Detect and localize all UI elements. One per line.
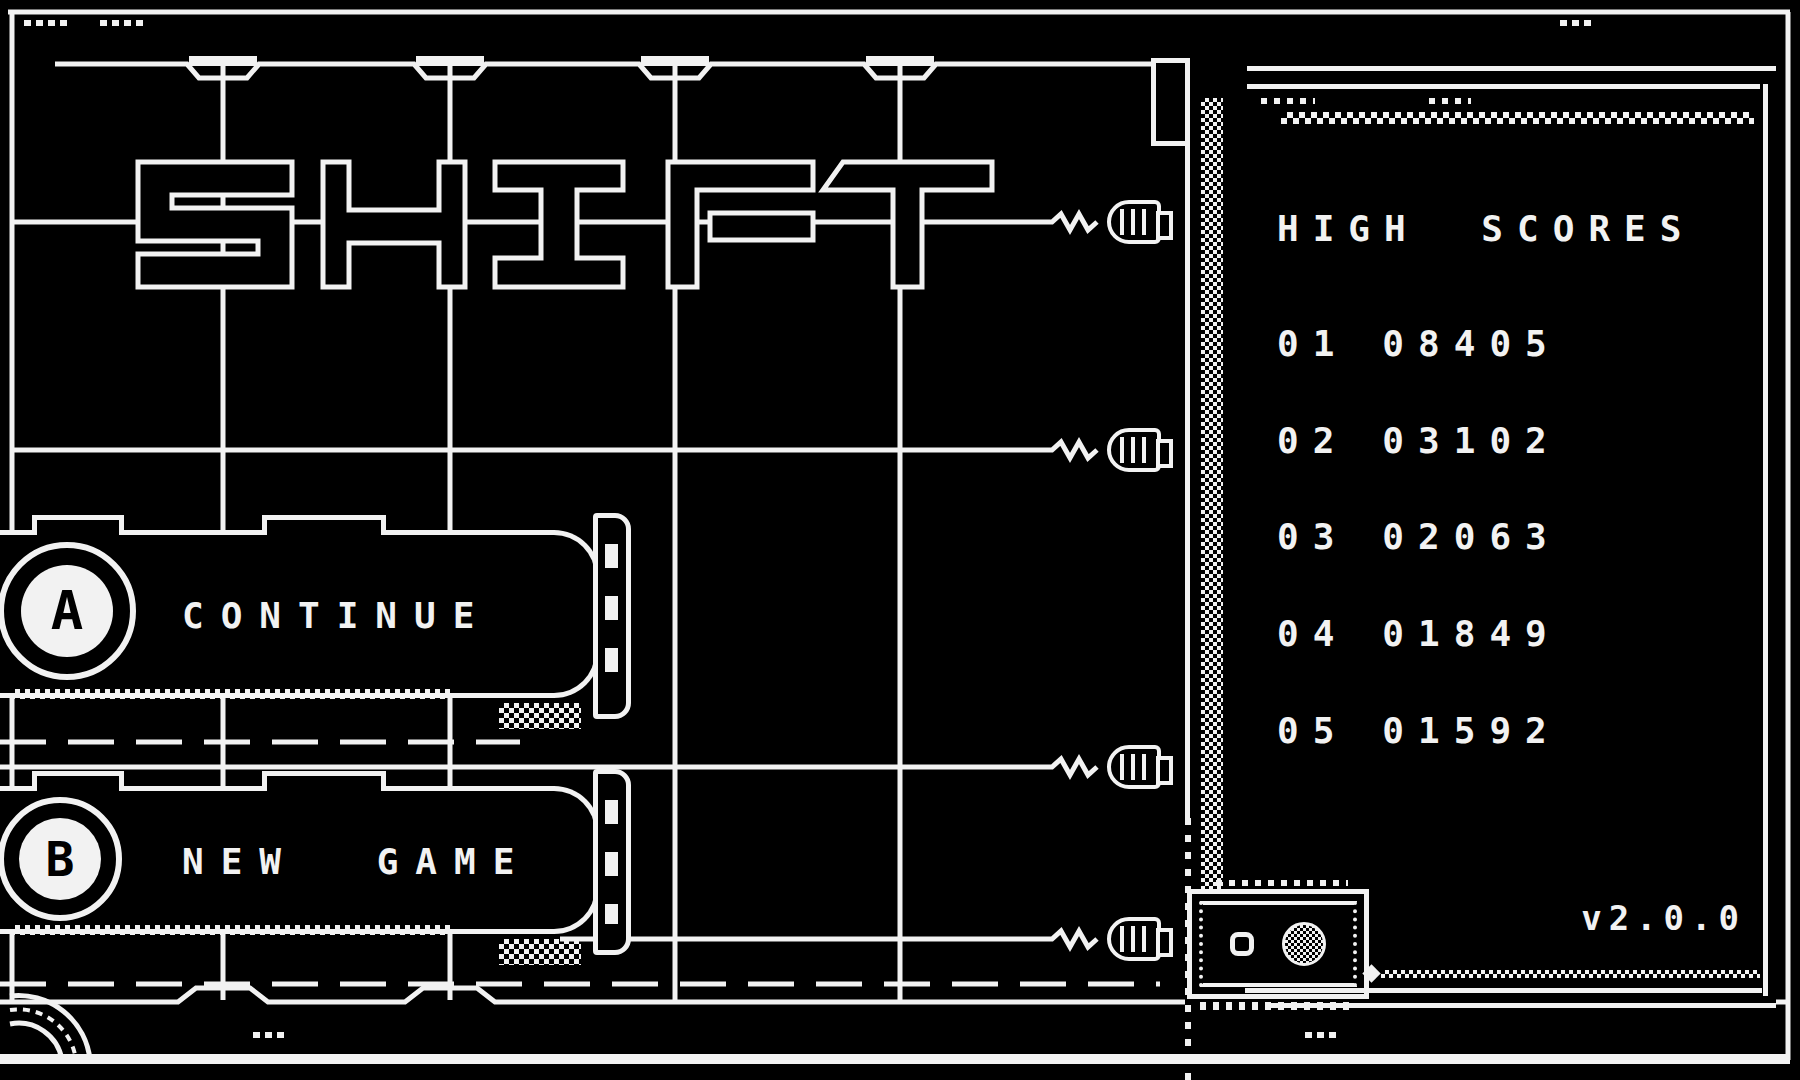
score-row: 02 03102 xyxy=(1277,420,1561,461)
button-bottom-texture xyxy=(10,689,450,699)
gamepad-a-key-label: A xyxy=(51,584,84,638)
high-scores-heading: HIGH SCORES xyxy=(1277,208,1695,249)
corner-pipe-elbow xyxy=(10,996,90,1060)
panel-bolt-icon xyxy=(1107,200,1161,244)
version-label: v2.0.0 xyxy=(1581,898,1746,938)
panel-component-module xyxy=(1187,889,1369,999)
panel-bolt-icon xyxy=(1107,917,1161,961)
panel-top-line xyxy=(1247,66,1776,71)
gamepad-a-disc: A xyxy=(21,565,113,657)
panel-bolt-icon xyxy=(1107,428,1161,472)
gamepad-b-icon: B xyxy=(0,797,122,921)
score-value: 01592 xyxy=(1382,710,1560,751)
button-cap-decoration xyxy=(593,513,631,719)
score-value: 02063 xyxy=(1382,516,1560,557)
grid-row xyxy=(0,759,1097,775)
panel-dither-edge xyxy=(1201,98,1223,948)
score-row: 03 02063 xyxy=(1277,516,1561,557)
score-rank: 03 xyxy=(1277,516,1348,557)
new-game-button[interactable]: B NEW GAME xyxy=(0,786,600,934)
title-screen: SHIFT xyxy=(0,0,1800,1080)
button-corner-texture xyxy=(499,703,581,729)
panel-dots xyxy=(1429,98,1471,104)
gamepad-a-icon: A xyxy=(0,542,136,680)
panel-edge-line xyxy=(1185,58,1190,818)
logo-letter-s xyxy=(138,162,292,287)
button-top-tab xyxy=(262,771,386,791)
grid-row xyxy=(560,931,1097,947)
grid-row xyxy=(12,442,1097,458)
score-row: 04 01849 xyxy=(1277,613,1561,654)
score-rank: 02 xyxy=(1277,420,1348,461)
gamepad-b-disc: B xyxy=(19,818,101,900)
component-dots xyxy=(1216,880,1348,886)
frame-bottom-thick xyxy=(0,1054,1790,1064)
score-value: 01849 xyxy=(1382,613,1560,654)
button-bottom-texture xyxy=(10,925,450,935)
continue-button[interactable]: A CONTINUE xyxy=(0,530,600,698)
high-scores-panel: HIGH SCORES 01 08405 02 03102 03 02063 0… xyxy=(1185,58,1776,1008)
score-rank: 01 xyxy=(1277,323,1348,364)
panel-dots xyxy=(1261,98,1315,104)
logo-letter-h xyxy=(323,162,465,287)
new-game-label: NEW GAME xyxy=(182,841,531,882)
button-top-tab xyxy=(262,515,386,535)
button-cap-decoration xyxy=(593,769,631,955)
panel-bottom-line xyxy=(1269,1003,1776,1008)
button-corner-texture xyxy=(499,939,581,965)
panel-bolt-icon xyxy=(1107,745,1161,789)
panel-top-line xyxy=(1247,84,1760,89)
score-value: 03102 xyxy=(1382,420,1560,461)
continue-label: CONTINUE xyxy=(182,595,491,636)
score-value: 08405 xyxy=(1382,323,1560,364)
button-top-tab xyxy=(32,515,124,535)
component-face xyxy=(1199,901,1357,987)
logo-letter-f-bar xyxy=(710,213,813,240)
panel-right-line xyxy=(1763,84,1768,996)
score-row: 05 01592 xyxy=(1277,710,1561,751)
big-knob-icon xyxy=(1282,922,1326,966)
gamepad-b-key-label: B xyxy=(46,835,75,883)
panel-wave-line xyxy=(1381,970,1760,978)
score-rank: 04 xyxy=(1277,613,1348,654)
panel-corner-bracket xyxy=(1151,58,1185,146)
panel-bottom-line xyxy=(1245,988,1762,993)
score-rank: 05 xyxy=(1277,710,1348,751)
small-knob-icon xyxy=(1230,932,1254,956)
panel-zigzag-strip xyxy=(1281,112,1754,124)
button-top-tab xyxy=(32,771,124,791)
score-row: 01 08405 xyxy=(1277,323,1561,364)
